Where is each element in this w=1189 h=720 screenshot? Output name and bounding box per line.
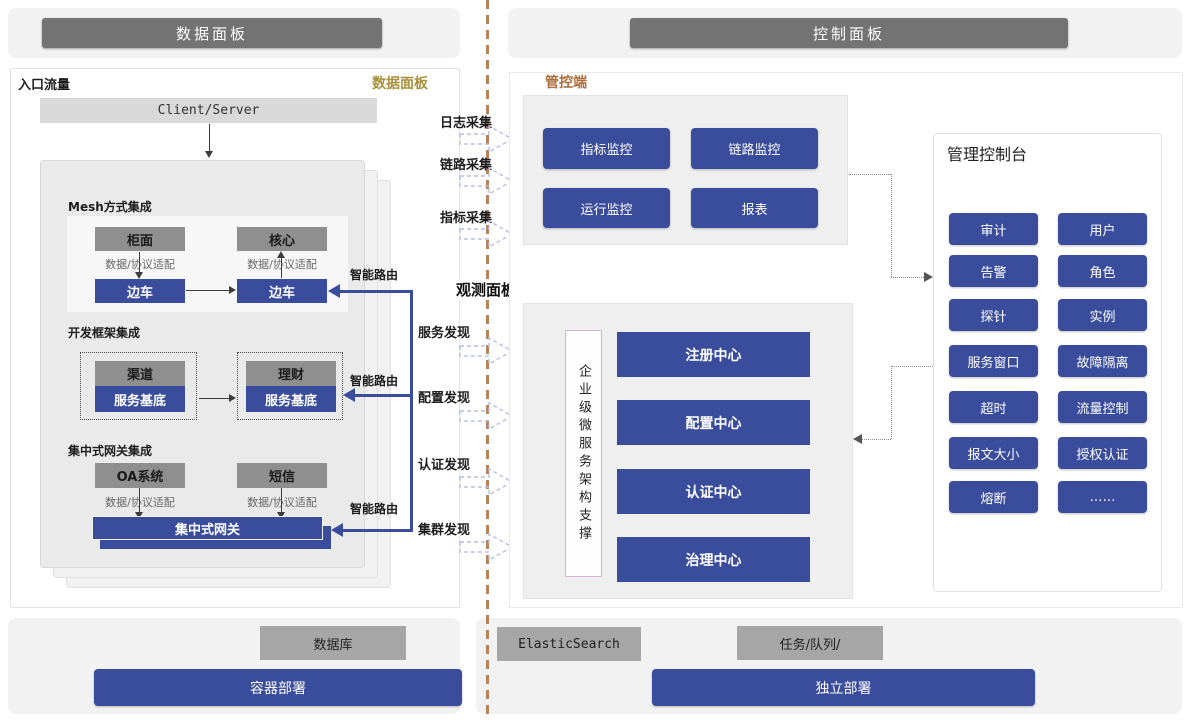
- client-server-arrow-line: [209, 124, 210, 152]
- message-size-node: 报文大小: [949, 437, 1038, 469]
- gateway-oa-node: OA系统: [95, 463, 185, 488]
- governance-center-node: 治理中心: [617, 537, 810, 582]
- gateway-section-title: 集中式网关集成: [68, 442, 152, 459]
- runtime-monitor-node: 运行监控: [543, 188, 670, 228]
- smart-route-arrowhead-3: [331, 523, 343, 537]
- framework-channel-node: 渠道: [95, 361, 185, 386]
- entry-traffic-label: 入口流量: [18, 74, 70, 93]
- mesh-core-node: 核心: [237, 227, 327, 251]
- auth-discover-flow-arrow: [459, 468, 513, 496]
- mesh-front-node: 柜面: [95, 227, 185, 251]
- trace-collect-flow-arrow: [459, 167, 513, 195]
- container-deploy-node: 容器部署: [94, 669, 462, 706]
- framework-wealth-node: 理财: [246, 361, 336, 386]
- framework-arrow-line: [199, 398, 230, 399]
- smart-route-bus-line: [410, 291, 413, 532]
- config-discover-flow-arrow: [459, 402, 513, 430]
- mesh-horizontal-arrowhead: [229, 286, 236, 294]
- smart-route-arrowhead-2: [343, 388, 355, 402]
- smart-route-line-3: [343, 529, 413, 532]
- task-queue-node: 任务/队列/: [737, 626, 883, 660]
- client-server-arrowhead: [205, 151, 213, 158]
- control-end-label: 管控端: [545, 72, 587, 92]
- admin-console-title: 管理控制台: [947, 141, 1027, 165]
- log-collect-flow-arrow: [459, 125, 513, 153]
- client-server-node: Client/Server: [40, 98, 377, 123]
- smart-route-line-1: [340, 290, 413, 293]
- mesh-horizontal-arrow-line: [186, 290, 230, 291]
- microservice-support-vertical-label: 企业级微服务架构支撑: [565, 330, 602, 577]
- metric-monitor-node: 指标监控: [543, 128, 670, 169]
- report-node: 报表: [691, 188, 818, 228]
- more-node: ……: [1058, 481, 1147, 513]
- user-node: 用户: [1058, 213, 1147, 245]
- metric-collect-flow-arrow: [459, 220, 513, 248]
- service-window-node: 服务窗口: [949, 345, 1038, 377]
- role-node: 角色: [1058, 255, 1147, 287]
- mesh-section-title: Mesh方式集成: [68, 198, 152, 215]
- mesh-adapter-label-left: 数据/协议适配: [95, 256, 185, 272]
- gateway-adapter-label-right: 数据/协议适配: [237, 494, 327, 510]
- gateway-right-arrow-line: [281, 488, 282, 513]
- mesh-down-arrowhead: [135, 272, 143, 279]
- mesh-sidecar-right-node: 边车: [237, 279, 327, 303]
- alert-node: 告警: [949, 255, 1038, 287]
- config-center-node: 配置中心: [617, 400, 810, 445]
- mesh-adapter-label-right: 数据/协议适配: [237, 256, 327, 272]
- registry-center-node: 注册中心: [617, 332, 810, 377]
- probe-node: 探针: [949, 299, 1038, 331]
- connector-console-to-centers-v: [891, 366, 892, 439]
- fault-isolation-node: 故障隔离: [1058, 345, 1147, 377]
- framework-base-left-node: 服务基底: [95, 386, 185, 412]
- mesh-down-arrow-line: [139, 252, 140, 273]
- data-plane-header: 数据面板: [42, 18, 382, 48]
- connector-console-to-centers-h1: [891, 366, 933, 367]
- data-plane-corner-label: 数据面板: [372, 73, 428, 93]
- connector-monitor-to-console-h2: [891, 277, 924, 278]
- circuit-breaker-node: 熔断: [949, 481, 1038, 513]
- mesh-sidecar-left-node: 边车: [95, 279, 185, 303]
- framework-base-right-node: 服务基底: [246, 386, 336, 412]
- service-discover-flow-arrow: [459, 337, 513, 365]
- gateway-node: 集中式网关: [92, 516, 323, 540]
- smart-route-line-2: [355, 394, 413, 397]
- gateway-sms-node: 短信: [237, 463, 327, 488]
- mesh-up-arrowhead: [277, 251, 285, 258]
- traffic-control-node: 流量控制: [1058, 391, 1147, 423]
- connector-monitor-to-console-arrowhead: [924, 272, 933, 282]
- framework-arrowhead: [229, 394, 236, 402]
- authorization-node: 授权认证: [1058, 437, 1147, 469]
- smart-route-label-2: 智能路由: [350, 372, 398, 389]
- audit-node: 审计: [949, 213, 1038, 245]
- database-node: 数据库: [260, 626, 406, 660]
- framework-section-title: 开发框架集成: [68, 324, 140, 341]
- elasticsearch-node: ElasticSearch: [497, 627, 641, 661]
- gateway-left-arrow-line: [139, 488, 140, 513]
- smart-route-label-1: 智能路由: [350, 266, 398, 283]
- connector-console-to-centers-h2: [862, 439, 891, 440]
- architecture-diagram: 数据面板 控制面板 入口流量 数据面板 Client/Server Mesh方式…: [0, 0, 1189, 720]
- smart-route-arrowhead-1: [328, 284, 340, 298]
- connector-console-to-centers-arrowhead: [853, 434, 862, 444]
- auth-center-node: 认证中心: [617, 469, 810, 514]
- gateway-adapter-label-left: 数据/协议适配: [95, 494, 185, 510]
- cluster-discover-flow-arrow: [459, 533, 513, 561]
- connector-monitor-to-console-v: [891, 174, 892, 277]
- standalone-deploy-node: 独立部署: [652, 669, 1035, 706]
- control-plane-header: 控制面板: [630, 18, 1068, 48]
- smart-route-label-3: 智能路由: [350, 500, 398, 517]
- trace-monitor-node: 链路监控: [691, 128, 818, 169]
- instance-node: 实例: [1058, 299, 1147, 331]
- timeout-node: 超时: [949, 391, 1038, 423]
- connector-monitor-to-console-h1: [849, 174, 891, 175]
- mesh-up-arrow-line: [281, 258, 282, 278]
